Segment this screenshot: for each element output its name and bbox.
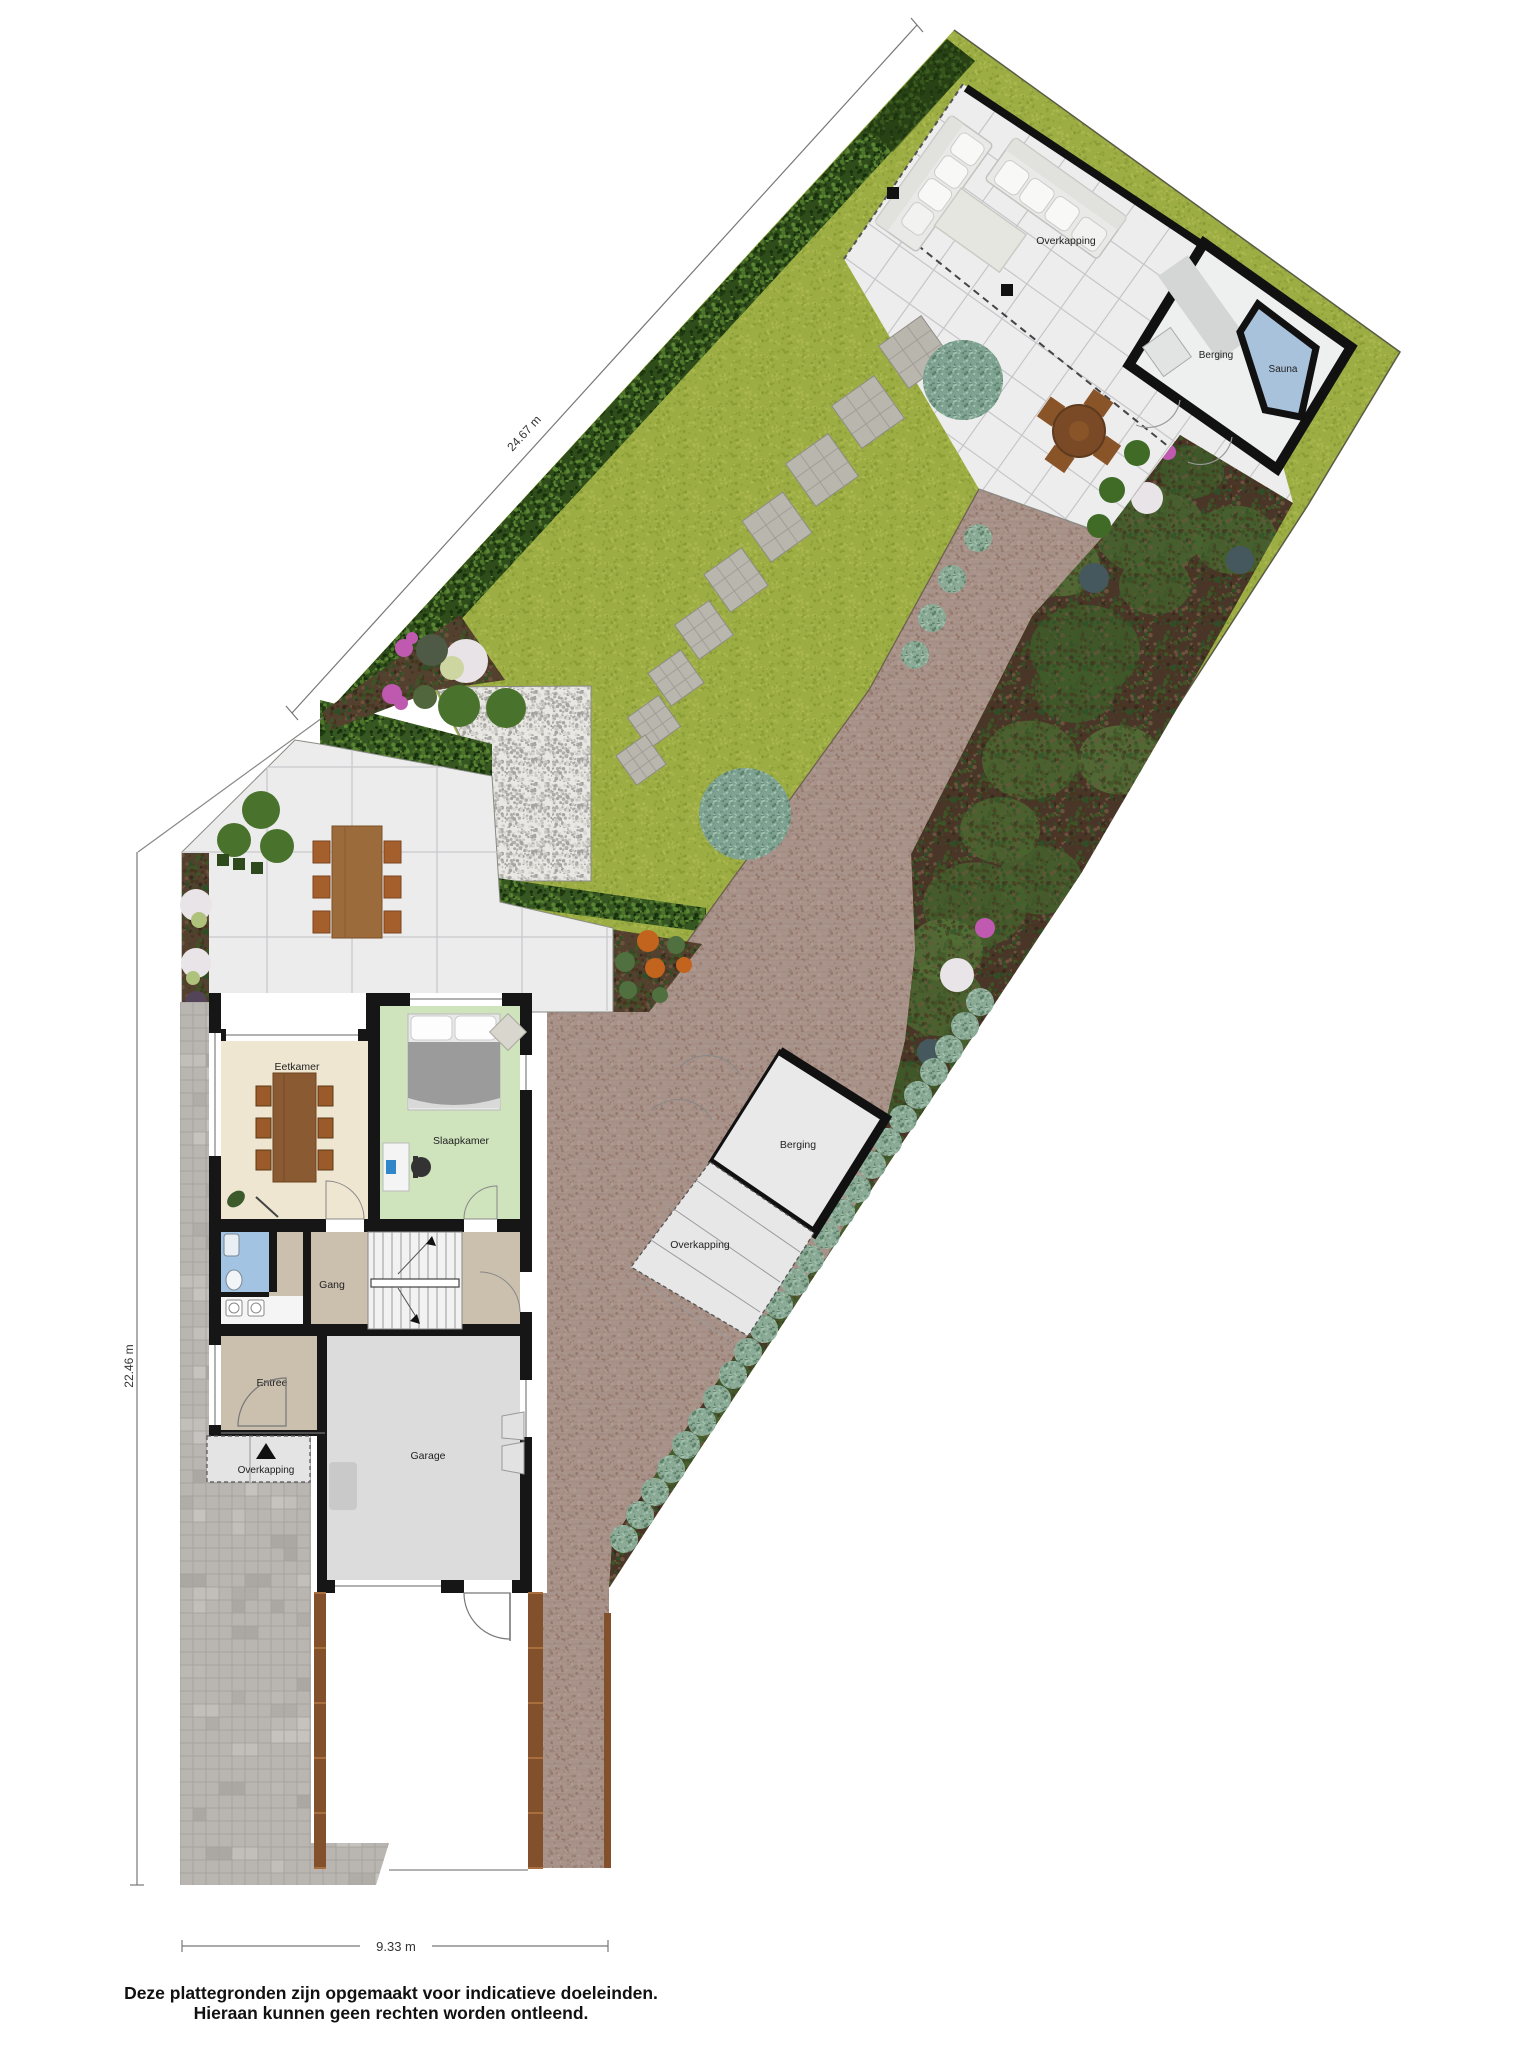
svg-text:Slaapkamer: Slaapkamer (433, 1135, 490, 1147)
svg-text:Berging: Berging (780, 1139, 816, 1151)
svg-text:Sauna: Sauna (1269, 364, 1298, 375)
svg-text:Hieraan kunnen geen rechten wo: Hieraan kunnen geen rechten worden ontle… (194, 2003, 589, 2023)
svg-text:Deze plattegronden zijn opgema: Deze plattegronden zijn opgemaakt voor i… (124, 1983, 658, 2003)
svg-text:Overkapping: Overkapping (238, 1465, 295, 1476)
svg-text:Entree: Entree (257, 1377, 288, 1389)
svg-text:Berging: Berging (1199, 350, 1233, 361)
svg-text:9.33 m: 9.33 m (376, 1939, 416, 1954)
svg-text:24.67 m: 24.67 m (504, 413, 544, 454)
svg-text:Overkapping: Overkapping (670, 1239, 730, 1251)
svg-text:Eetkamer: Eetkamer (275, 1061, 320, 1073)
svg-text:Overkapping: Overkapping (1036, 235, 1096, 247)
svg-text:Garage: Garage (410, 1450, 445, 1462)
svg-text:22.46 m: 22.46 m (122, 1344, 136, 1387)
svg-text:Gang: Gang (319, 1279, 345, 1291)
